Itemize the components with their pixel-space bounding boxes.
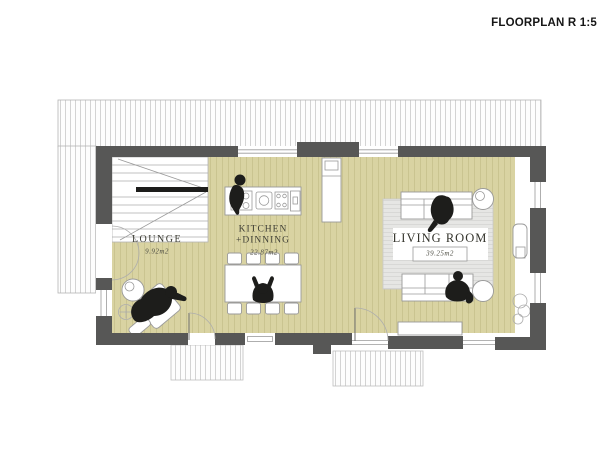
room-label-lounge: LOUNGE — [132, 235, 182, 245]
room-area-living: 39.25m2 — [426, 251, 454, 258]
room-area-lounge: 9.92m2 — [145, 249, 169, 256]
window-top-living — [359, 146, 398, 157]
window-top-kitchen — [238, 146, 297, 157]
window-right-upper — [530, 182, 546, 208]
room-label-living: LIVING ROOM — [393, 232, 488, 245]
window-right-lower — [530, 273, 546, 303]
room-area-kitchen: 22.87m2 — [250, 250, 278, 257]
lounge-side-table — [122, 279, 144, 301]
floorplan-drawing — [0, 0, 600, 460]
terrace-right — [333, 351, 423, 386]
right-niche — [513, 224, 530, 324]
room-label-kitchen-line2: +DINNING — [236, 236, 290, 246]
sideboard — [398, 322, 462, 335]
window-bottom-sliding — [245, 333, 275, 345]
plant — [513, 294, 527, 308]
floorplan-canvas: FLOORPLAN R 1:5 LOUNGE 9.92m2 KITCHEN +D… — [0, 0, 600, 460]
side-table-bottom — [473, 281, 494, 302]
tall-cabinet — [322, 158, 341, 222]
room-label-kitchen-line1: KITCHEN — [239, 225, 288, 235]
stair-handrail — [136, 187, 208, 192]
terraces — [171, 345, 423, 386]
terrace-left — [171, 345, 243, 380]
window-bottom-living — [463, 336, 495, 349]
eaves-hatch-left — [58, 146, 96, 293]
eaves-hatch-top — [58, 100, 541, 147]
dining-chair — [266, 303, 280, 314]
dining-chair — [285, 303, 299, 314]
window-left — [96, 290, 112, 316]
dining-chair — [228, 253, 242, 264]
staircase — [112, 157, 208, 242]
plan-title: FLOORPLAN R 1:5 — [491, 17, 597, 29]
dining-chair — [285, 253, 299, 264]
dining-chair — [247, 303, 261, 314]
dining-chair — [228, 303, 242, 314]
